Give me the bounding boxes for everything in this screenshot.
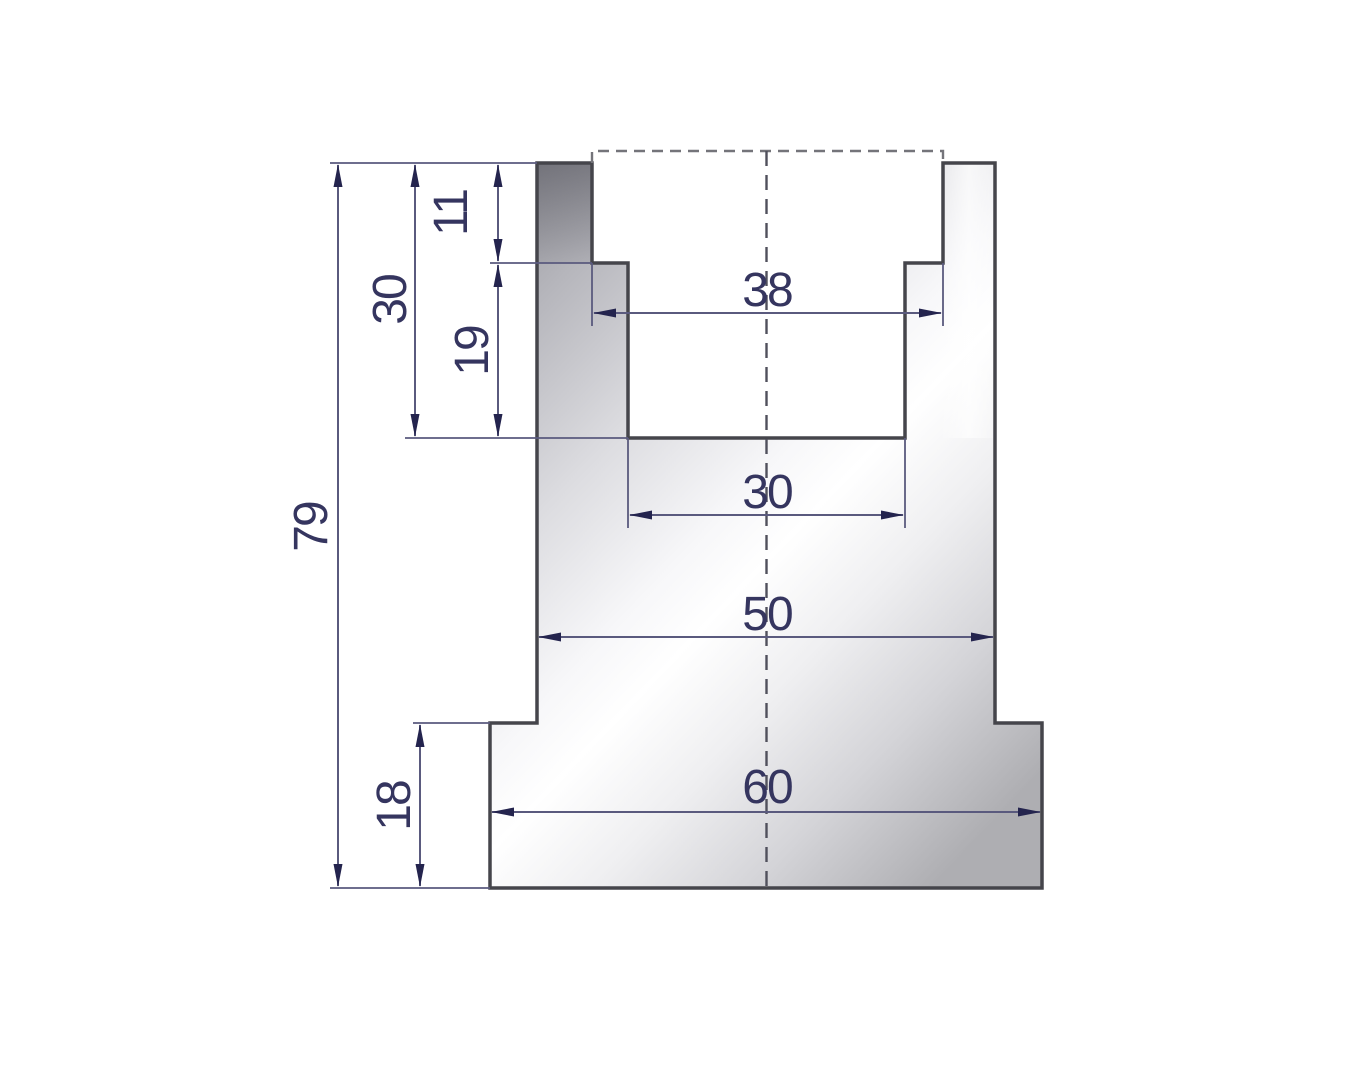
dimension-label-50: 50 — [742, 588, 792, 641]
arrow-up-icon — [416, 724, 425, 747]
dimension-label-18: 18 — [368, 781, 421, 831]
right-wall-highlight — [943, 163, 995, 438]
dimension-groove-depth: 30 — [364, 164, 420, 437]
dimension-label-19: 19 — [446, 326, 499, 376]
dimension-label-30-horizontal: 30 — [742, 466, 792, 519]
dimension-total-height: 79 — [285, 164, 343, 887]
dimension-lower-step: 19 — [446, 264, 503, 437]
arrow-up-icon — [494, 264, 503, 287]
arrow-down-icon — [411, 414, 420, 437]
dimension-label-30-vertical: 30 — [364, 275, 417, 325]
arrow-down-icon — [494, 414, 503, 437]
technical-drawing-canvas: 79 30 11 19 — [0, 0, 1355, 1080]
arrow-up-icon — [494, 164, 503, 187]
dimension-label-79: 79 — [285, 502, 338, 552]
left-wall-shading — [537, 163, 592, 263]
arrow-down-icon — [494, 239, 503, 262]
dimension-label-38: 38 — [742, 264, 792, 317]
dimension-base-height: 18 — [368, 724, 425, 887]
die-cross-section-drawing: 79 30 11 19 — [0, 0, 1355, 1080]
dimension-label-60: 60 — [742, 761, 792, 814]
arrow-up-icon — [411, 164, 420, 187]
dimension-label-11: 11 — [425, 190, 478, 236]
arrow-down-icon — [334, 864, 343, 887]
arrow-up-icon — [334, 164, 343, 187]
arrow-down-icon — [416, 864, 425, 887]
dimension-upper-step: 11 — [425, 164, 503, 262]
dimension-groove-top-width: 38 — [593, 264, 942, 318]
